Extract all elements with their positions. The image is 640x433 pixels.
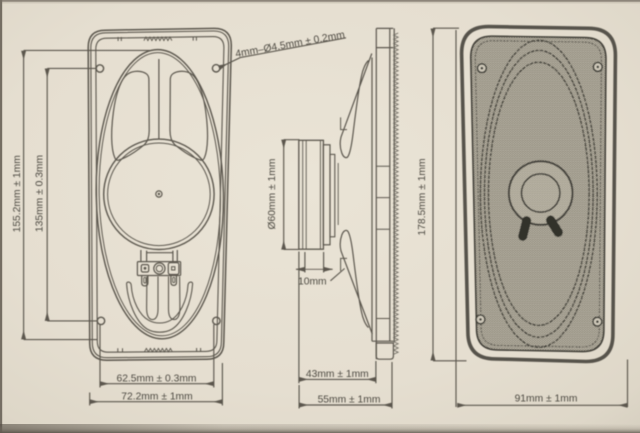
svg-text:91mm ± 1mm: 91mm ± 1mm xyxy=(515,394,578,405)
svg-text:72.2mm ± 1mm: 72.2mm ± 1mm xyxy=(121,392,192,403)
svg-text:55mm ± 1mm: 55mm ± 1mm xyxy=(318,394,381,405)
svg-text:10mm: 10mm xyxy=(298,276,327,287)
svg-text:Ø60mm ± 1mm: Ø60mm ± 1mm xyxy=(267,159,278,230)
svg-text:43mm ± 1mm: 43mm ± 1mm xyxy=(306,369,369,380)
svg-text:178.5mm ± 1mm: 178.5mm ± 1mm xyxy=(417,158,428,235)
svg-text:135mm ± 0.3mm: 135mm ± 0.3mm xyxy=(34,155,45,232)
svg-text:62.5mm ± 0.3mm: 62.5mm ± 0.3mm xyxy=(116,374,196,385)
svg-text:155.2mm ± 1mm: 155.2mm ± 1mm xyxy=(12,155,23,232)
